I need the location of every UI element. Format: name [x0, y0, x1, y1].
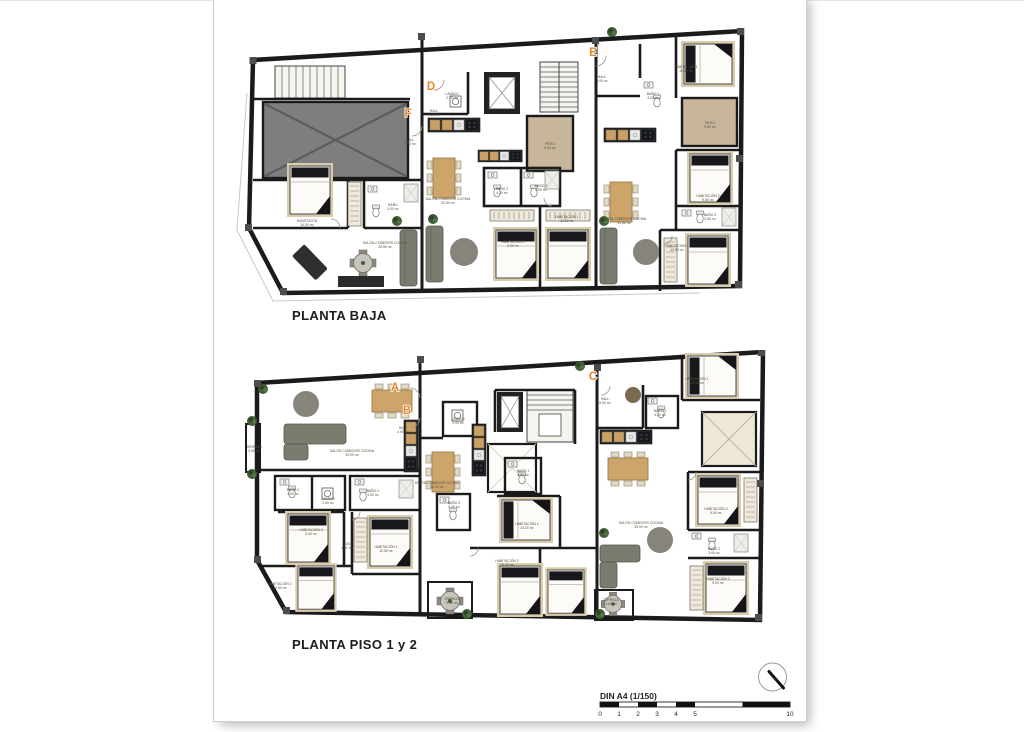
scale-tick-10: 10	[786, 711, 794, 718]
room-label: HABITACIÓN 112.50 m²	[555, 214, 578, 223]
apartment-letter-F: F	[404, 108, 411, 120]
scale-tick-1: 1	[617, 711, 621, 718]
room-label: BAÑO 24.20 m²	[448, 500, 461, 509]
scale-label: DIN A4 (1/150)	[600, 691, 657, 701]
room-label: PATIO9.50 m²	[704, 121, 716, 129]
room-label: HALL7.00 m²	[428, 109, 440, 117]
north-arrow-icon	[759, 663, 787, 691]
room-label: BAÑO 14.50 m²	[367, 488, 380, 497]
apartment-letter-E: E	[589, 47, 597, 59]
room-label: HALL5.00 m²	[596, 75, 608, 83]
room-label: HALL5.00 m²	[599, 397, 611, 405]
scale-tick-3: 3	[655, 711, 659, 718]
scale-tick-2: 2	[636, 711, 640, 718]
room-label: BAÑO 23.60 m²	[708, 546, 721, 555]
scale-and-north: DIN A4 (1/150) 01234510	[590, 655, 810, 720]
apartment-letter-A: A	[391, 382, 399, 394]
room-label: BAÑO 14.20 m²	[647, 91, 660, 100]
room-label: HALL3.50 m²	[404, 138, 416, 146]
service-core	[495, 390, 575, 444]
scale-tick-0: 0	[598, 711, 602, 718]
room-label: LAVADO2.50 m²	[321, 497, 335, 505]
floor-plan-planta-piso: ABCHALL2.00 m²TERRAZA4.00 m²SALÓN COMEDO…	[210, 350, 810, 680]
plan-title-planta-piso: PLANTA PISO 1 y 2	[292, 637, 417, 652]
room-label: PATIO9.00 m²	[544, 142, 556, 150]
scale-bar	[600, 702, 790, 707]
room-label: SALÓN-COMEDOR COCINA31.50 m²	[602, 216, 647, 225]
room-label: HABITACIÓN10.50 m²	[297, 218, 318, 227]
floor-plan-planta-baja: FDEHALL3.50 m²BAÑO3.00 m²HABITACIÓN10.50…	[210, 0, 810, 350]
room-label: BAÑO3.00 m²	[387, 202, 399, 211]
room-label: LAVADO2.70 m²	[445, 92, 459, 100]
scale-numbers: 01234510	[598, 711, 794, 718]
apartment-letter-D: D	[427, 81, 435, 93]
room-label: BAÑO 24.20 m²	[496, 186, 509, 195]
room-label: BAÑO 14.50 m²	[517, 468, 530, 477]
room-label: SALÓN-COMEDOR COCINA52.50 m²	[426, 196, 471, 205]
room-label: LAVADO2.00 m²	[451, 417, 465, 425]
apartment-letter-C: C	[589, 371, 597, 383]
room-label: BAÑO 14.50 m²	[535, 183, 548, 192]
plan-title-planta-baja: PLANTA BAJA	[292, 308, 387, 323]
scale-tick-4: 4	[674, 711, 678, 718]
room-label: BAÑO 24.00 m²	[287, 487, 300, 496]
scale-tick-5: 5	[693, 711, 697, 718]
room-label: BAÑO 23.60 m²	[704, 212, 717, 221]
room-label: BAÑO 14.20 m²	[654, 408, 667, 417]
apartment-letter-B: B	[403, 405, 411, 417]
room-label: SALÓN COMEDOR COCINA29.00 m²	[330, 448, 375, 457]
